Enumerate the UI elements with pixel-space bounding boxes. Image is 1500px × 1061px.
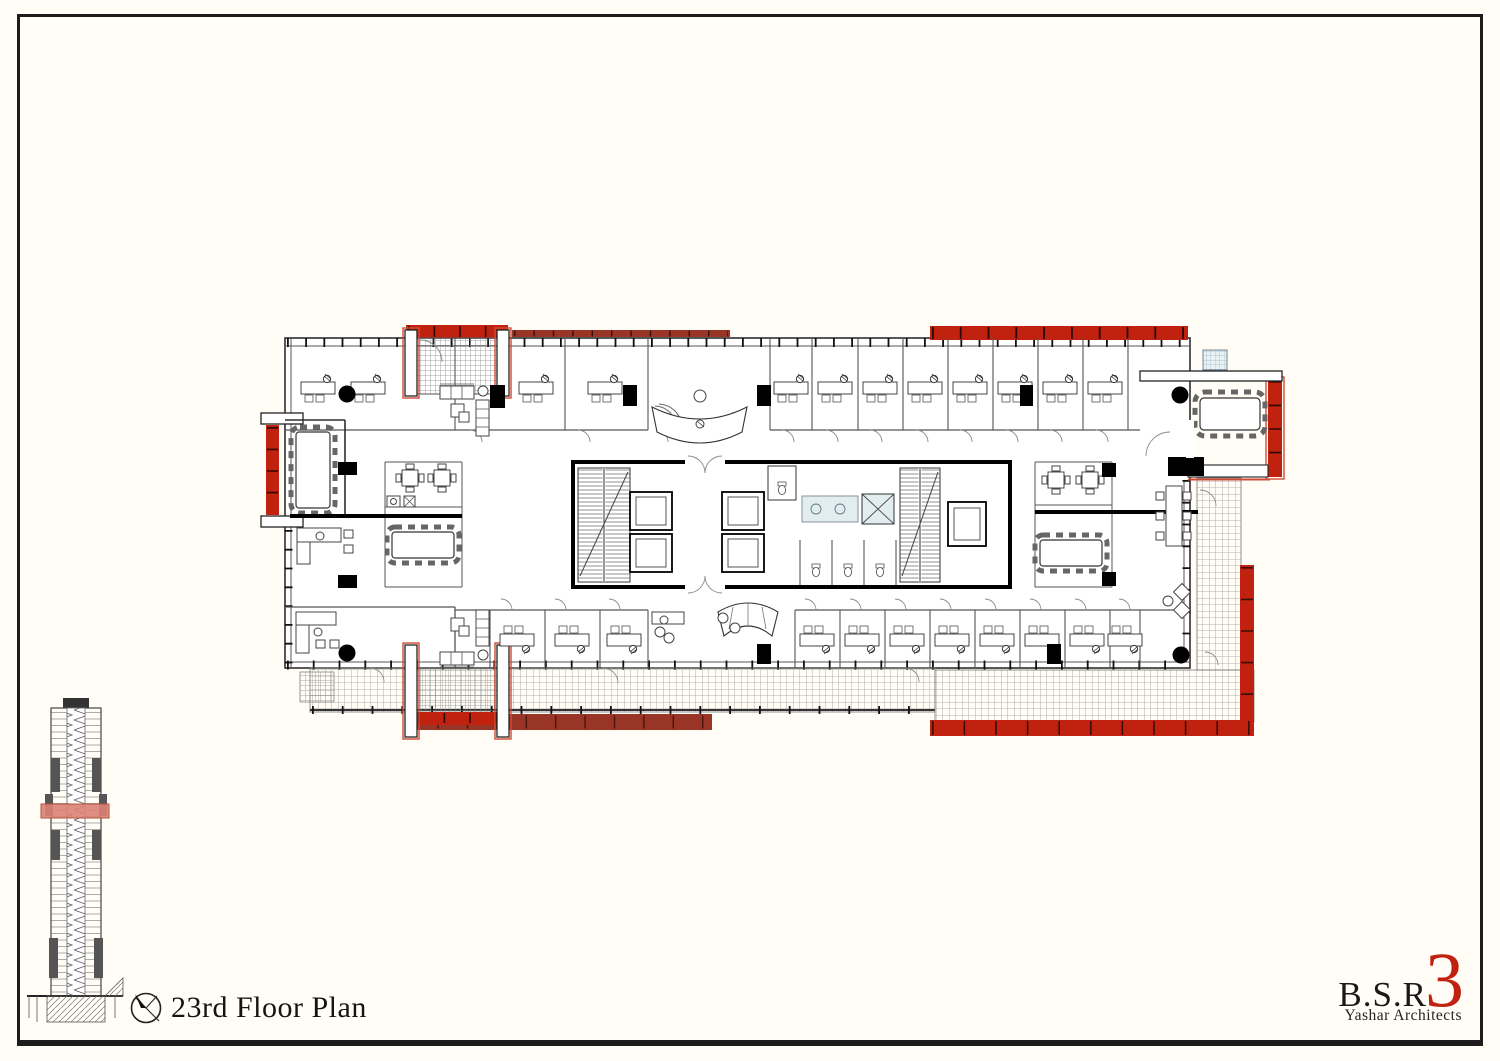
- drawing-title-block: 23rd Floor Plan: [126, 988, 367, 1028]
- north-arrow-icon: [126, 988, 166, 1028]
- south-terrace: [300, 668, 935, 712]
- firm-logo-numeral: 3: [1425, 952, 1464, 1008]
- service-core: [573, 456, 1010, 593]
- drawing-sheet: 23rd Floor Plan B.S.R3 Yashar Architects: [0, 0, 1500, 1061]
- stair-east: [900, 468, 940, 582]
- section-level-highlight: [41, 804, 109, 818]
- firm-logo: B.S.R3 Yashar Architects: [1244, 952, 1464, 1025]
- stair-west: [578, 468, 630, 582]
- building-section-thumbnail: [25, 690, 125, 1035]
- sheet-title: 23rd Floor Plan: [171, 991, 367, 1025]
- floor-plan-drawing: [250, 305, 1310, 755]
- firm-tagline: Yashar Architects: [1244, 1007, 1462, 1025]
- service-elevator: [948, 502, 986, 546]
